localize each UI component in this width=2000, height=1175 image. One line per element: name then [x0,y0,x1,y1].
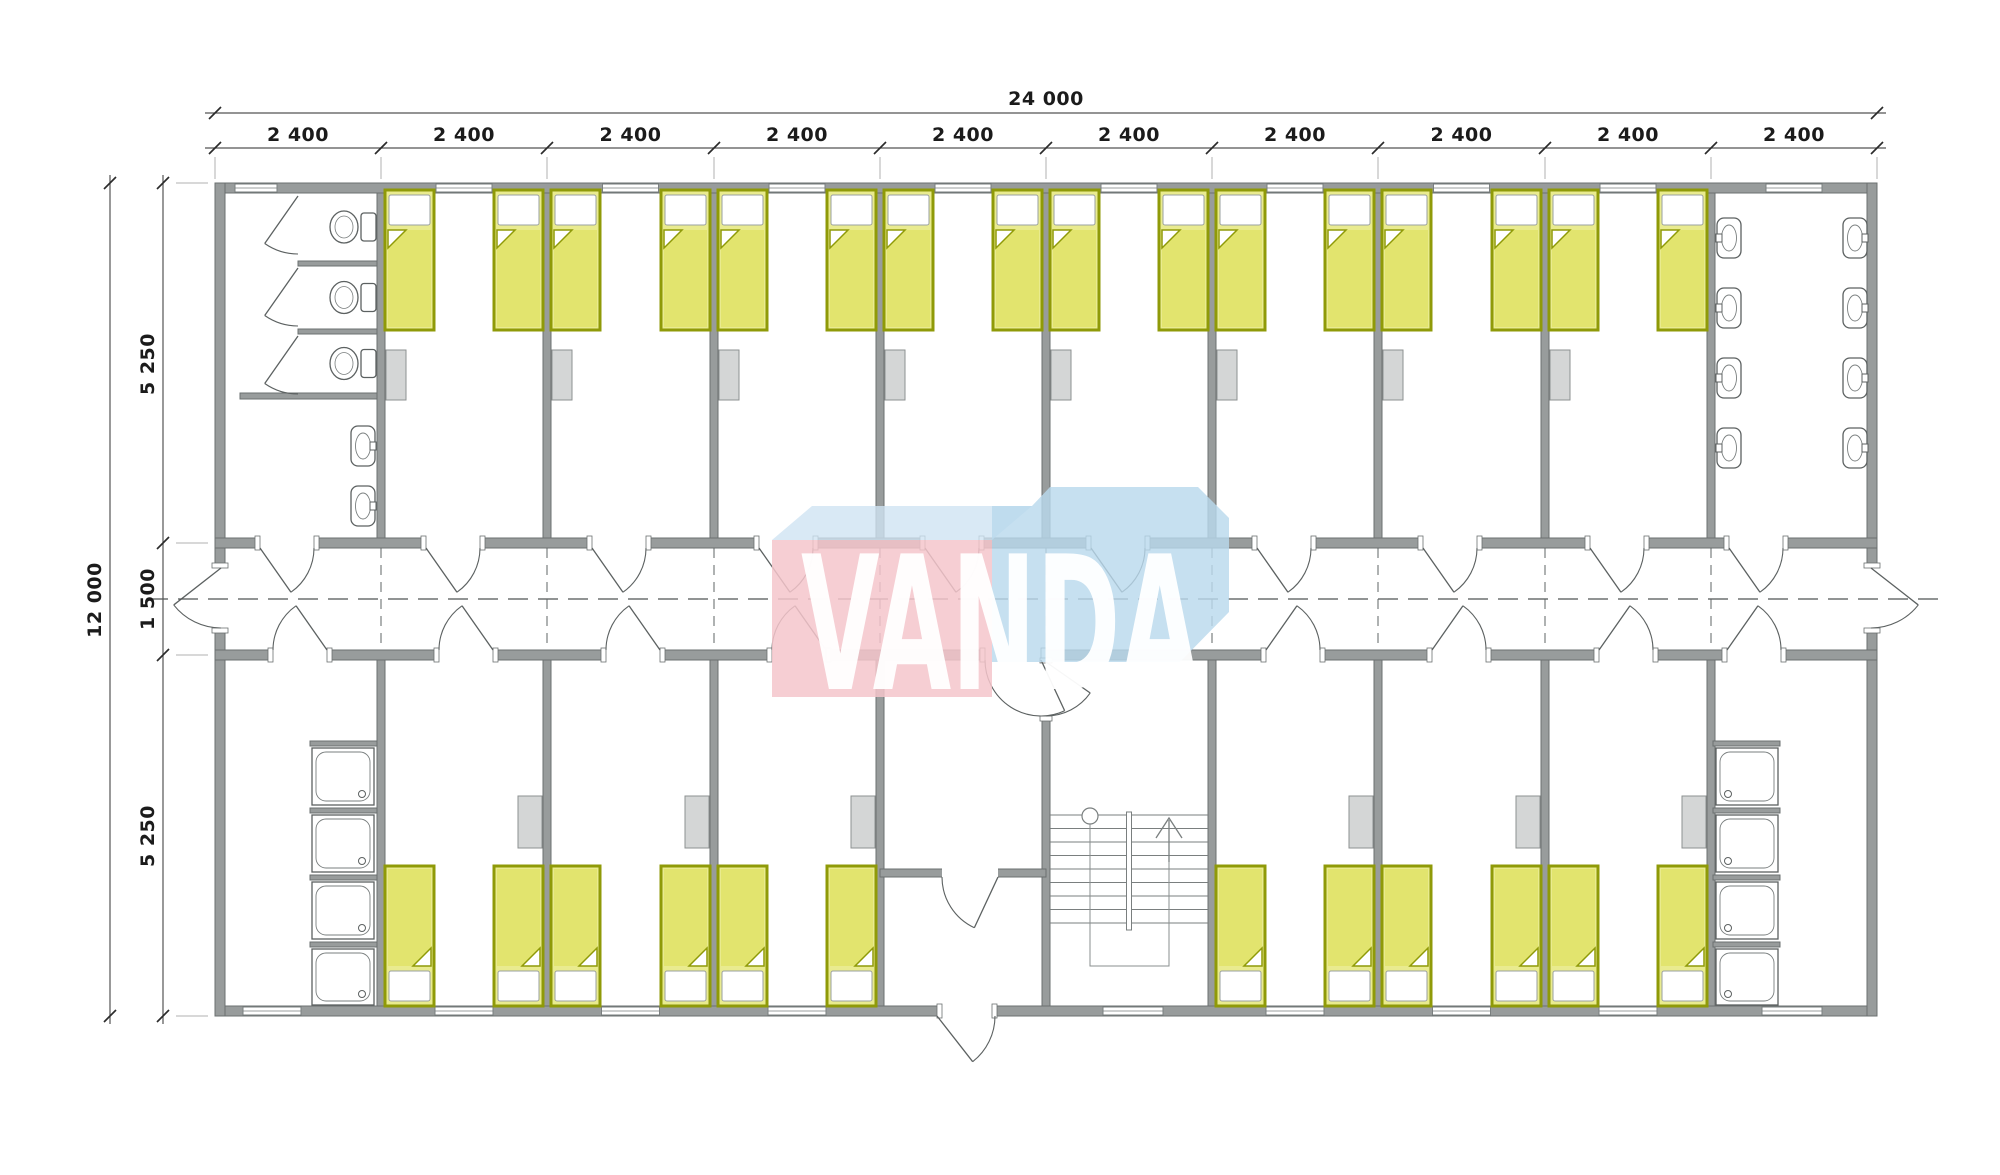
door-jamb [1320,648,1325,662]
toilet-icon [330,348,376,380]
blanket [664,230,707,327]
door-jamb [1418,536,1423,550]
door-opening [426,537,480,550]
dim-depth-segment-2-label: 5 250 [137,805,159,867]
door-jamb [660,648,665,662]
door-jamb [1311,536,1316,550]
floor-plan-page: VANDA 24 000 2 4002 4002 4002 4002 4002 … [0,0,2000,1175]
dim-total-width-label: 24 000 [1008,88,1084,110]
pillow [665,195,706,225]
door-jamb [1864,563,1880,568]
blanket [721,230,764,327]
sink-icon [351,486,376,526]
bed [1050,190,1099,330]
bed [827,866,876,1006]
door-icon [592,548,646,592]
wc-stall-wall [298,329,377,334]
door-jamb [1477,536,1482,550]
door-opening [1727,649,1781,662]
pillow [1553,195,1594,225]
door-jamb [1252,536,1257,550]
locker [1682,796,1706,848]
blanket [1661,869,1704,966]
locker [1217,350,1237,400]
shower-icon [312,949,374,1005]
shower-stall-wall [1713,942,1780,947]
dim-width-segment-label: 2 400 [600,124,662,146]
door-jamb [601,648,606,662]
blanket [1053,230,1096,327]
shower-icon [1716,748,1778,805]
door-opening [1432,649,1486,662]
door-jamb [1644,536,1649,550]
pillow [1054,195,1095,225]
blanket [830,869,873,966]
door-icon [426,548,480,592]
bed [385,866,434,1006]
door-icon [1423,548,1477,592]
bed [1382,866,1431,1006]
blanket [1219,230,1262,327]
dim-width-segment-label: 2 400 [932,124,994,146]
locker [518,796,542,848]
door-opening [942,867,998,879]
pillow [1163,195,1204,225]
shower-stall-wall [310,942,377,947]
door-opening [937,1005,997,1018]
door-opening [1423,537,1477,550]
door-jamb [1722,648,1727,662]
dim-width-segment-label: 2 400 [267,124,329,146]
toilet-icon [330,211,376,243]
door-jamb [1427,648,1432,662]
blanket [388,230,431,327]
sink-icon [1716,218,1741,258]
bed [1216,190,1265,330]
door-opening [1599,649,1653,662]
blanket [1162,230,1205,327]
watermark-text: VANDA [801,516,1199,733]
door-jamb [255,536,260,550]
blanket [1495,230,1538,327]
pillow [498,195,539,225]
shower-icon [312,748,374,805]
door-jamb [327,648,332,662]
blanket [1328,869,1371,966]
staircase [1050,808,1208,966]
pillow [665,971,706,1001]
pillow [1220,971,1261,1001]
door-opening [592,537,646,550]
sink-icon [1843,358,1868,398]
blanket [1328,230,1371,327]
door-opening [1266,649,1320,662]
pillow [1496,971,1537,1001]
floor-plan-drawing: VANDA 24 000 2 4002 4002 4002 4002 4002 … [0,0,2000,1175]
dim-total-depth-label: 12 000 [84,562,106,638]
door-jamb [268,648,273,662]
locker [719,350,739,400]
bed [1216,866,1265,1006]
blanket [1385,869,1428,966]
blanket [887,230,930,327]
shower-icon [312,882,374,939]
locker [1383,350,1403,400]
dim-width-segment-label: 2 400 [1264,124,1326,146]
door-jamb [1781,648,1786,662]
bed [718,866,767,1006]
pillow [722,971,763,1001]
blanket [1495,869,1538,966]
door-icon [273,606,327,650]
bed [1159,190,1208,330]
pillow [831,971,872,1001]
bed [1658,866,1707,1006]
pillow [1386,971,1427,1001]
door-icon [1727,606,1781,650]
blanket [388,869,431,966]
pillow [1553,971,1594,1001]
blanket [1552,869,1595,966]
door-jamb [314,536,319,550]
sink-icon [351,426,376,466]
door-jamb [212,628,228,633]
pillow [1329,195,1370,225]
blanket [996,230,1039,327]
shower-stall-wall [1713,741,1780,746]
stair-divider [1127,812,1132,930]
locker [1051,350,1071,400]
door-jamb [587,536,592,550]
sink-icon [1716,288,1741,328]
bed [1325,866,1374,1006]
door-jamb [646,536,651,550]
bed [1658,190,1707,330]
door-icon [937,1016,995,1062]
bed [1492,866,1541,1006]
pillow [555,971,596,1001]
blanket [1661,230,1704,327]
pillow [555,195,596,225]
bed [993,190,1042,330]
bed [1549,866,1598,1006]
locker [1516,796,1540,848]
bed [718,190,767,330]
shower-stall-wall [310,875,377,880]
bed [1325,190,1374,330]
dim-width-segment-label: 2 400 [1597,124,1659,146]
shower-stall-wall [1713,875,1780,880]
door-jamb [767,648,772,662]
bed [661,866,710,1006]
door-icon [265,268,298,326]
door-opening [273,649,327,662]
bed [551,190,600,330]
door-jamb [1783,536,1788,550]
blanket [1219,869,1262,966]
bed [385,190,434,330]
pillow [498,971,539,1001]
locker [885,350,905,400]
locker [552,350,572,400]
shower-icon [312,815,374,872]
dim-width-segment-label: 2 400 [1763,124,1825,146]
dim-width-segment-labels: 2 4002 4002 4002 4002 4002 4002 4002 400… [267,124,1825,146]
shower-icon [1716,882,1778,939]
shower-icon [1716,949,1778,1005]
shower-icon [1716,815,1778,872]
door-opening [260,537,314,550]
shower-stall-wall [1713,808,1780,813]
sink-icon [1716,428,1741,468]
door-icon [1729,548,1783,592]
pillow [1329,971,1370,1001]
dim-width-segment-label: 2 400 [766,124,828,146]
dim-depth-segment-0-label: 5 250 [137,333,159,395]
locker [851,796,875,848]
door-icon [1599,606,1653,650]
blanket [664,869,707,966]
door-icon [1590,548,1644,592]
door-jamb [1585,536,1590,550]
pillow [1662,971,1703,1001]
door-opening [1865,568,1879,628]
door-jamb [421,536,426,550]
pillow [1386,195,1427,225]
door-jamb [480,536,485,550]
bed [1549,190,1598,330]
door-jamb [1653,648,1658,662]
sink-icon [1843,288,1868,328]
bed [551,866,600,1006]
shower-stall-wall [310,808,377,813]
blanket [1552,230,1595,327]
door-icon [1432,606,1486,650]
pillow [997,195,1038,225]
blanket [497,230,540,327]
door-icon [1257,548,1311,592]
sink-icon [1716,358,1741,398]
sink-icon [1843,428,1868,468]
dim-depth-segment-1-label: 1 500 [137,568,159,630]
door-icon [260,548,314,592]
door-jamb [992,1004,997,1018]
bed [1382,190,1431,330]
wc-room-wall [240,393,377,399]
blanket [721,869,764,966]
door-icon [606,606,660,650]
blanket [554,869,597,966]
blanket [1385,230,1428,327]
shower-stall-wall [310,741,377,746]
bed [1492,190,1541,330]
bed [827,190,876,330]
wc-stall-wall [298,261,377,266]
door-jamb [1724,536,1729,550]
locker [1550,350,1570,400]
door-icon [265,196,298,254]
door-jamb [1594,648,1599,662]
door-jamb [937,1004,942,1018]
door-jamb [493,648,498,662]
pillow [1662,195,1703,225]
bed [661,190,710,330]
door-jamb [212,563,228,568]
locker [685,796,709,848]
pillow [1496,195,1537,225]
dim-width-segment-label: 2 400 [1431,124,1493,146]
pillow [389,195,430,225]
pillow [1220,195,1261,225]
dim-width-segment-label: 2 400 [433,124,495,146]
blanket [497,869,540,966]
door-icon [1266,606,1320,650]
toilet-icon [330,282,376,314]
pillow [389,971,430,1001]
door-opening [1257,537,1311,550]
door-opening [213,568,227,628]
door-jamb [754,536,759,550]
door-icon [265,336,298,394]
locker [1349,796,1373,848]
door-jamb [434,648,439,662]
bed [494,866,543,1006]
door-opening [606,649,660,662]
vanda-watermark-logo: VANDA [772,487,1229,733]
door-jamb [1864,628,1880,633]
blanket [830,230,873,327]
locker [386,350,406,400]
dim-width-segment-label: 2 400 [1098,124,1160,146]
door-opening [1729,537,1783,550]
pillow [722,195,763,225]
door-icon [942,877,998,928]
pillow [831,195,872,225]
pillow [888,195,929,225]
blanket [554,230,597,327]
sink-icon [1843,218,1868,258]
door-jamb [1486,648,1491,662]
door-icon [439,606,493,650]
bed [884,190,933,330]
door-jamb [1261,648,1266,662]
door-opening [1590,537,1644,550]
stair-column [1082,808,1098,824]
bed [494,190,543,330]
door-opening [439,649,493,662]
